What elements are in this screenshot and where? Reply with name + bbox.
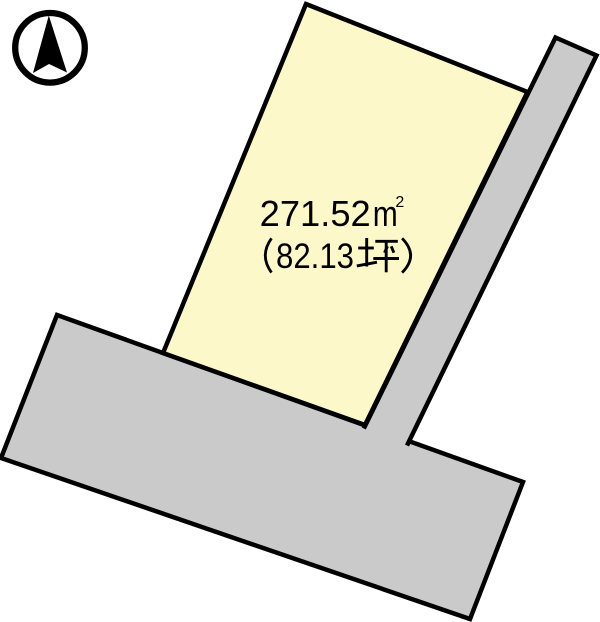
svg-text:2: 2 [395, 194, 404, 211]
svg-text:m: m [373, 193, 398, 234]
svg-text:271.52: 271.52 [260, 193, 371, 234]
svg-text:82.13: 82.13 [276, 236, 354, 276]
